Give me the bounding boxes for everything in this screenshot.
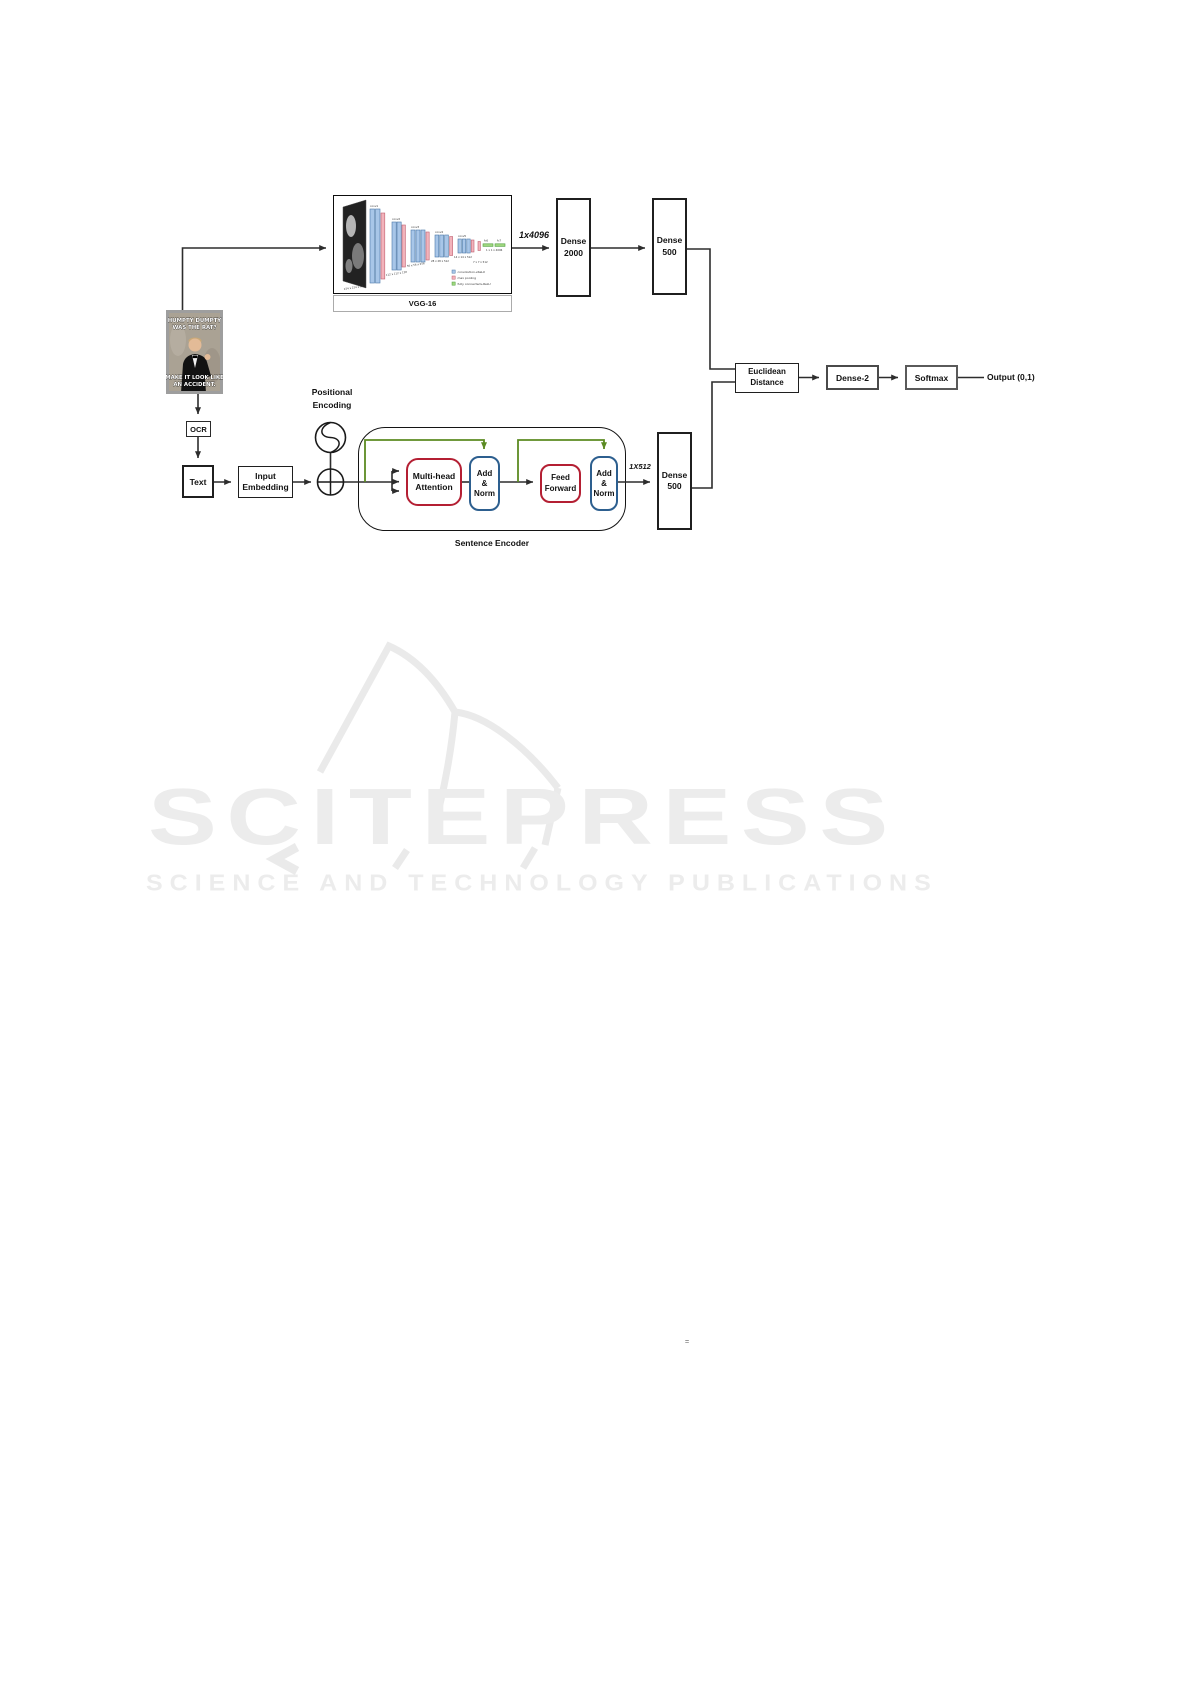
- euclidean-line1: Euclidean: [748, 367, 786, 378]
- vgg-conv3-label: conv3: [411, 225, 419, 229]
- positional-encoding-sine-icon: [316, 423, 346, 453]
- feed-forward-line2: Forward: [545, 484, 577, 494]
- text-feature-vector-label: 1X512: [622, 462, 658, 471]
- watermark-subtitle: SCIENCE AND TECHNOLOGY PUBLICATIONS: [146, 872, 938, 895]
- meme-bottom-text-line2: AN ACCIDENT.: [173, 382, 215, 388]
- sentence-encoder-caption: Sentence Encoder: [422, 538, 562, 548]
- softmax-label: Softmax: [915, 373, 949, 383]
- vgg-dim-4096: 1 x 1 x 4096: [486, 248, 503, 252]
- vgg-legend-fc: fully connected+ReLU: [458, 282, 491, 286]
- input-embedding-box: Input Embedding: [238, 466, 293, 498]
- add-norm-1-box: Add & Norm: [469, 456, 500, 511]
- dense-2000-box: Dense 2000: [556, 198, 591, 297]
- euclidean-line2: Distance: [750, 378, 783, 389]
- feed-forward-box: Feed Forward: [540, 464, 581, 503]
- output-label: Output (0,1): [987, 372, 1057, 382]
- dense-2-label: Dense-2: [836, 373, 869, 383]
- vgg-dim-112: 112 x 112 x 128: [386, 270, 408, 277]
- feed-forward-line1: Feed: [551, 473, 570, 483]
- text-box: Text: [182, 465, 214, 498]
- add-norm-2-box: Add & Norm: [590, 456, 618, 511]
- vgg-conv5-label: conv5: [458, 234, 466, 238]
- dense-500-text-line2: 500: [667, 481, 681, 492]
- vgg-fc6-label: fc6: [484, 239, 488, 243]
- vgg-fc7-label: fc7: [497, 239, 501, 243]
- ocr-label: OCR: [190, 425, 207, 434]
- vgg-dim-28: 28 x 28 x 512: [431, 259, 449, 263]
- dense-2000-line2: 2000: [564, 248, 583, 259]
- wire-meme-to-vgg: [183, 248, 327, 310]
- euclidean-distance-box: Euclidean Distance: [735, 363, 799, 393]
- ocr-box: OCR: [186, 421, 211, 437]
- add-norm-1-line3: Norm: [474, 489, 495, 499]
- vgg16-figure: conv1 conv2 conv3 conv4 conv5 fc6 fc7 22…: [333, 195, 512, 294]
- dense-500-text-box: Dense 500: [657, 432, 692, 530]
- meme-image: HUMPTY DUMPTY WAS THE RAT? MAKE IT LOOK …: [166, 310, 223, 394]
- dense-500-image-line1: Dense: [657, 235, 683, 246]
- vgg-conv4-label: conv4: [435, 230, 443, 234]
- vgg-input-photo: [343, 200, 366, 288]
- dense-2000-line1: Dense: [561, 236, 587, 247]
- meme-bottom-text-line1: MAKE IT LOOK LIKE: [166, 375, 223, 381]
- add-norm-1-line1: Add: [477, 469, 493, 479]
- vgg-conv2-label: conv2: [392, 217, 400, 221]
- input-embedding-line2: Embedding: [242, 482, 288, 493]
- add-norm-2-line1: Add: [596, 469, 612, 479]
- dense-500-image-box: Dense 500: [652, 198, 687, 295]
- stray-mark: =: [685, 1339, 689, 1346]
- vgg-legend: convolution+ReLU max pooling fully conne…: [452, 270, 491, 286]
- wire-dense500b-to-euclidean: [692, 382, 735, 488]
- vgg-dim-224: 224 x 224 x 64: [344, 284, 364, 291]
- input-embedding-line1: Input: [255, 471, 276, 482]
- plus-circle-icon: [318, 469, 344, 495]
- vgg16-caption-strip: VGG-16: [333, 295, 512, 312]
- text-label: Text: [190, 477, 207, 487]
- vgg-dim-14: 14 x 14 x 512: [454, 255, 472, 259]
- mha-line1: Multi-head: [413, 471, 456, 482]
- positional-encoding-label: Positional Encoding: [303, 386, 361, 412]
- vgg-legend-conv: convolution+ReLU: [458, 270, 486, 274]
- watermark-logo-text: SCITEPRESS: [148, 777, 898, 857]
- wire-dense500-to-euclidean: [687, 249, 735, 369]
- dense-2-box: Dense-2: [826, 365, 879, 390]
- positional-encoding-line1: Positional: [312, 387, 353, 397]
- vgg-dim-7: 7 x 7 x 512: [473, 260, 488, 264]
- image-feature-vector-label: 1x4096: [512, 230, 556, 240]
- add-norm-1-line2: &: [482, 479, 488, 489]
- vgg16-caption: VGG-16: [409, 299, 437, 308]
- dense-500-image-line2: 500: [662, 247, 676, 258]
- meme-top-text-line1: HUMPTY DUMPTY: [168, 318, 222, 324]
- add-norm-2-line2: &: [601, 479, 607, 489]
- dense-500-text-line1: Dense: [662, 470, 688, 481]
- vgg-legend-pool: max pooling: [458, 276, 477, 280]
- softmax-box: Softmax: [905, 365, 958, 390]
- multi-head-attention-box: Multi-head Attention: [406, 458, 462, 506]
- meme-top-text-line2: WAS THE RAT?: [172, 325, 216, 331]
- page: SCITEPRESS SCIENCE AND TECHNOLOGY PUBLIC…: [0, 0, 1191, 1684]
- vgg-conv1-label: conv1: [370, 204, 378, 208]
- positional-encoding-line2: Encoding: [313, 400, 352, 410]
- add-norm-2-line3: Norm: [594, 489, 615, 499]
- mha-line2: Attention: [415, 482, 452, 493]
